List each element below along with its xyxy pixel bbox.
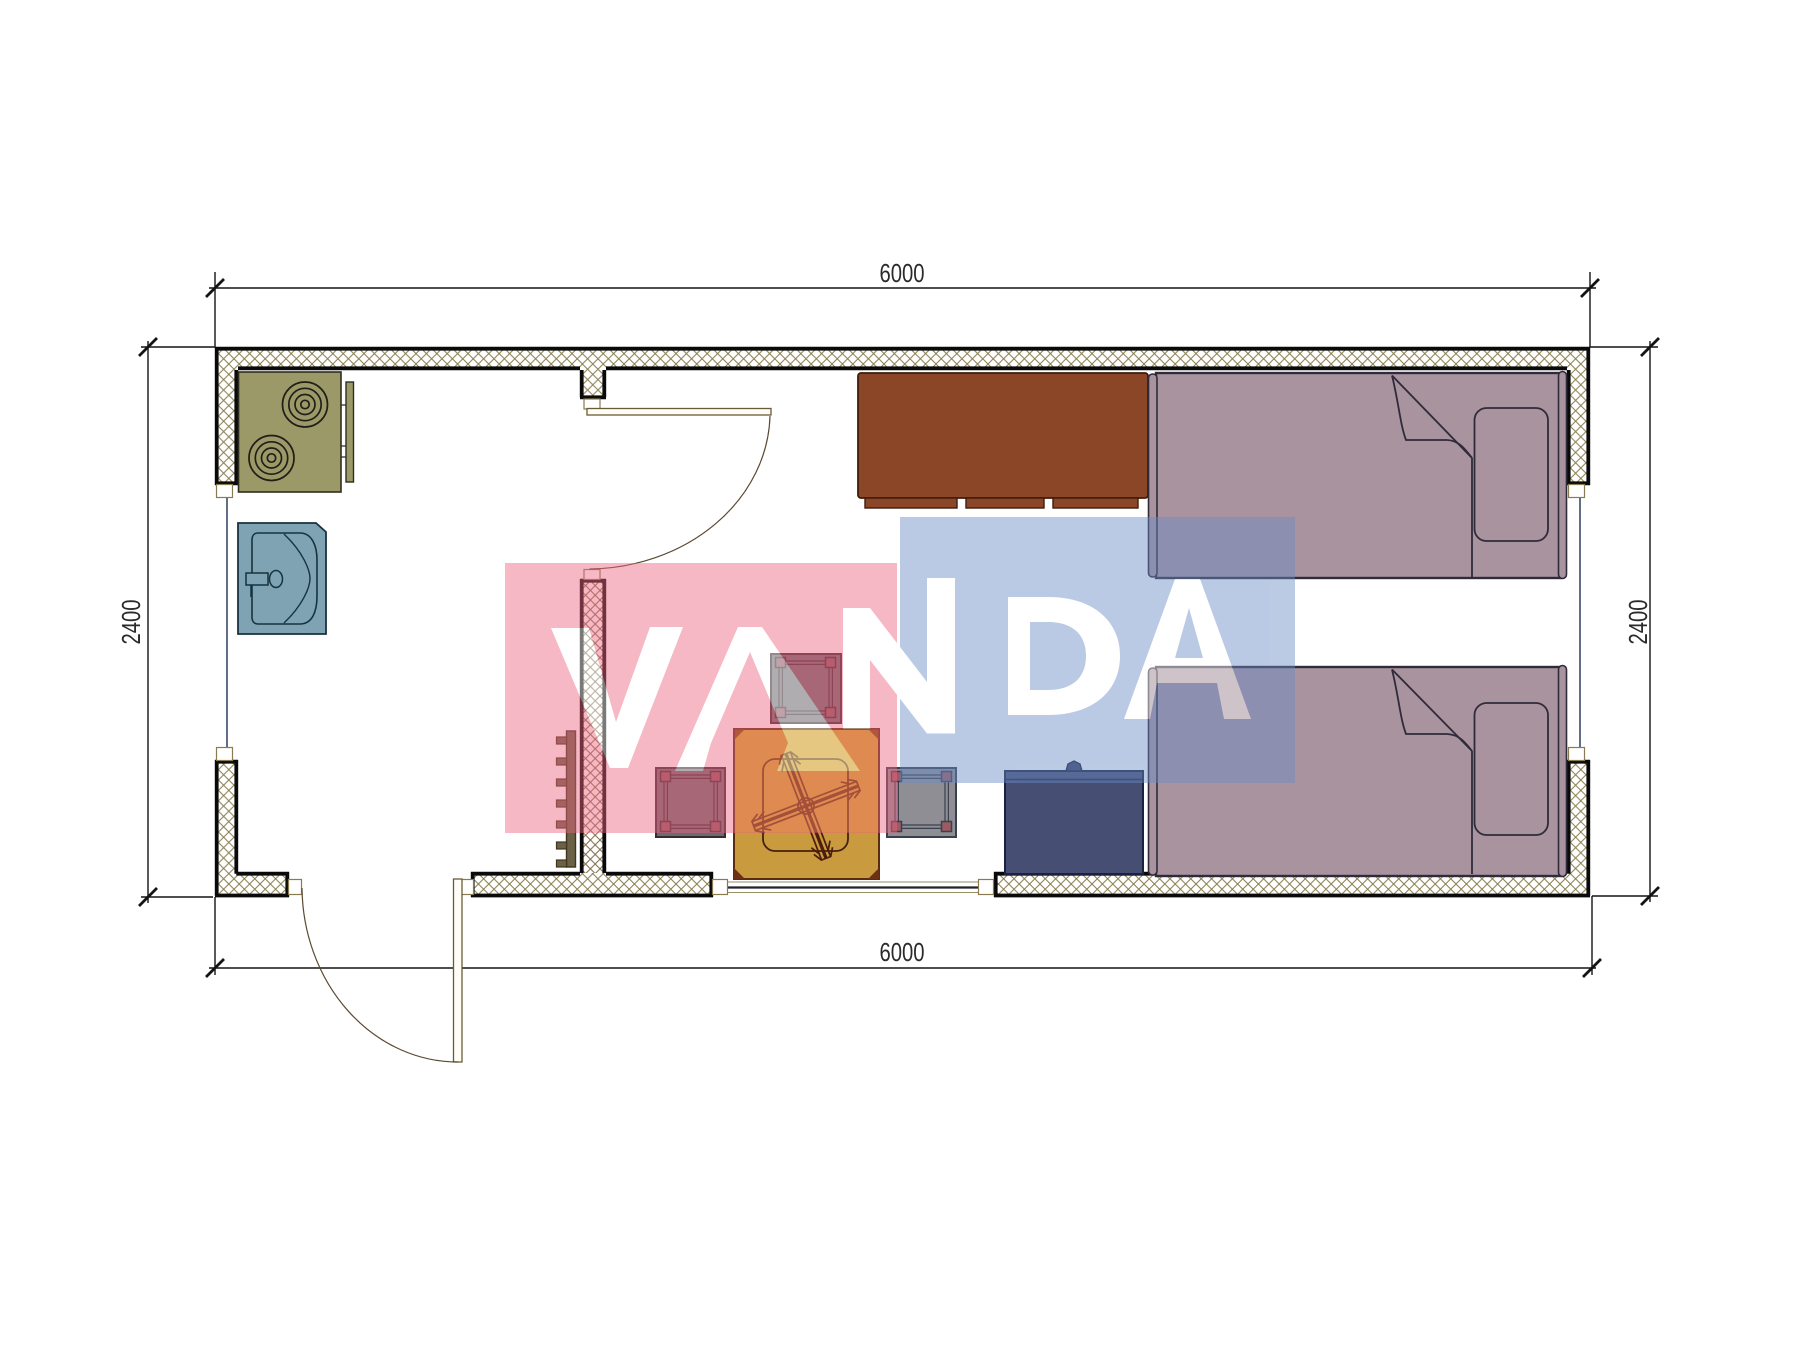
svg-text:6000: 6000 [879,938,924,967]
svg-text:2400: 2400 [1624,599,1653,644]
svg-text:2400: 2400 [117,599,146,644]
svg-text:6000: 6000 [879,259,924,288]
